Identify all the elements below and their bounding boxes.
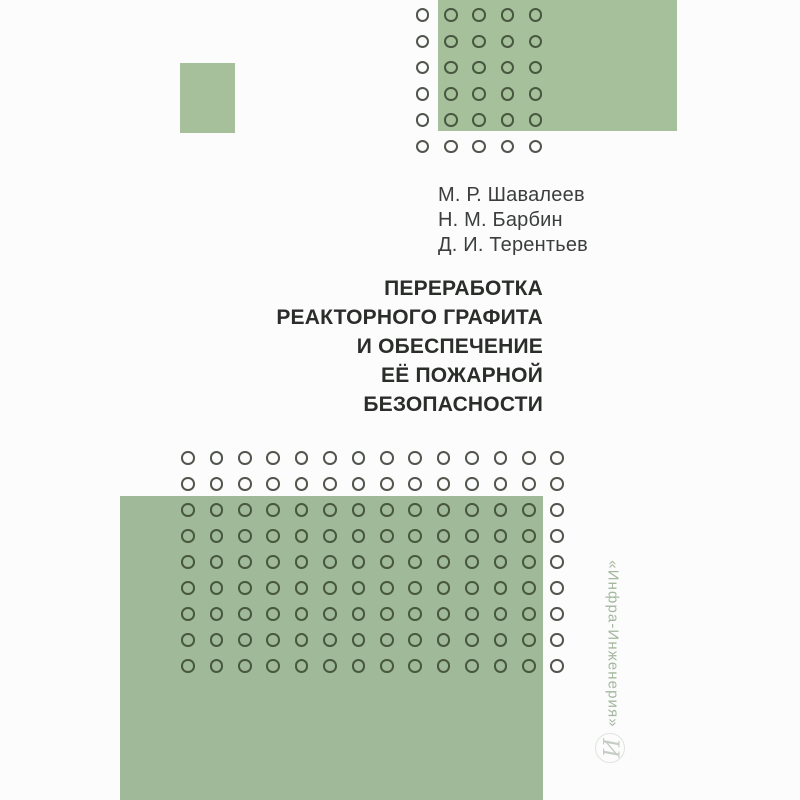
decor-ring bbox=[295, 477, 309, 491]
decor-ring bbox=[437, 607, 451, 621]
title-line: ПЕРЕРАБОТКА bbox=[276, 274, 543, 303]
decor-ring bbox=[266, 633, 280, 647]
decor-ring bbox=[408, 659, 422, 673]
decor-ring bbox=[494, 633, 508, 647]
decor-ring bbox=[408, 477, 422, 491]
decor-ring bbox=[416, 8, 430, 22]
title-line: РЕАКТОРНОГО ГРАФИТА bbox=[276, 303, 543, 332]
decor-ring bbox=[380, 451, 394, 465]
title-line: БЕЗОПАСНОСТИ bbox=[276, 390, 543, 419]
decor-ring bbox=[550, 633, 564, 647]
decor-ring bbox=[210, 633, 224, 647]
decor-ring bbox=[352, 477, 366, 491]
decor-ring bbox=[266, 477, 280, 491]
decor-ring bbox=[550, 477, 564, 491]
decor-ring bbox=[380, 633, 394, 647]
decor-ring bbox=[238, 555, 252, 569]
decor-ring bbox=[295, 607, 309, 621]
decor-ring bbox=[529, 140, 543, 154]
decor-ring bbox=[465, 555, 479, 569]
decor-ring bbox=[380, 659, 394, 673]
decor-ring bbox=[181, 555, 195, 569]
decor-ring bbox=[352, 529, 366, 543]
decor-ring bbox=[437, 633, 451, 647]
decor-ring bbox=[380, 503, 394, 517]
decor-ring bbox=[352, 581, 366, 595]
decor-ring bbox=[210, 555, 224, 569]
decor-ring bbox=[437, 503, 451, 517]
book-title: ПЕРЕРАБОТКА РЕАКТОРНОГО ГРАФИТА И ОБЕСПЕ… bbox=[276, 274, 543, 419]
decor-ring bbox=[352, 555, 366, 569]
decor-ring bbox=[416, 87, 430, 101]
decor-ring bbox=[522, 477, 536, 491]
decor-ring bbox=[323, 529, 337, 543]
decor-ring bbox=[550, 659, 564, 673]
decor-ring bbox=[181, 529, 195, 543]
decor-ring bbox=[238, 477, 252, 491]
decor-ring bbox=[408, 581, 422, 595]
decor-ring bbox=[181, 451, 195, 465]
decor-ring bbox=[181, 633, 195, 647]
decor-ring bbox=[323, 581, 337, 595]
decor-ring bbox=[465, 477, 479, 491]
author-line: Д. И. Терентьев bbox=[438, 233, 588, 258]
decor-ring bbox=[416, 35, 430, 49]
decor-ring bbox=[323, 477, 337, 491]
decor-ring bbox=[444, 87, 458, 101]
decor-ring bbox=[472, 87, 486, 101]
decor-ring bbox=[210, 607, 224, 621]
title-line: ЕЁ ПОЖАРНОЙ bbox=[276, 361, 543, 390]
decor-ring bbox=[465, 633, 479, 647]
author-line: Н. М. Барбин bbox=[438, 208, 588, 233]
decor-ring bbox=[494, 451, 508, 465]
publisher-monogram-icon: И bbox=[595, 733, 625, 763]
decor-ring bbox=[380, 607, 394, 621]
decor-ring bbox=[323, 633, 337, 647]
decor-ring bbox=[323, 503, 337, 517]
decor-ring bbox=[550, 581, 564, 595]
decor-ring bbox=[266, 659, 280, 673]
decor-ring bbox=[522, 555, 536, 569]
decor-ring bbox=[266, 529, 280, 543]
decor-ring bbox=[323, 451, 337, 465]
decor-ring bbox=[210, 529, 224, 543]
decor-ring bbox=[501, 113, 515, 127]
decor-ring bbox=[210, 659, 224, 673]
decor-ring bbox=[465, 529, 479, 543]
decor-ring bbox=[352, 633, 366, 647]
decor-ring bbox=[352, 659, 366, 673]
decor-ring bbox=[238, 503, 252, 517]
decor-ring bbox=[472, 35, 486, 49]
author-list: М. Р. Шавалеев Н. М. Барбин Д. И. Терент… bbox=[438, 183, 588, 258]
decor-ring bbox=[181, 659, 195, 673]
decor-ring bbox=[472, 8, 486, 22]
decor-ring bbox=[437, 529, 451, 543]
decor-ring bbox=[408, 607, 422, 621]
decor-ring bbox=[437, 581, 451, 595]
decor-ring bbox=[266, 451, 280, 465]
decor-ring bbox=[444, 61, 458, 75]
decor-ring bbox=[550, 607, 564, 621]
decor-ring bbox=[501, 35, 515, 49]
decor-ring bbox=[266, 555, 280, 569]
decor-ring bbox=[501, 87, 515, 101]
decor-ring bbox=[210, 451, 224, 465]
decor-ring bbox=[550, 555, 564, 569]
decor-ring bbox=[408, 555, 422, 569]
decor-ring bbox=[494, 659, 508, 673]
decor-ring bbox=[444, 35, 458, 49]
decor-ring bbox=[380, 555, 394, 569]
decor-ring bbox=[295, 633, 309, 647]
decor-ring bbox=[181, 477, 195, 491]
decor-ring bbox=[494, 529, 508, 543]
decor-ring bbox=[472, 113, 486, 127]
decor-ring bbox=[408, 633, 422, 647]
decor-ring bbox=[444, 140, 458, 154]
decor-ring bbox=[352, 451, 366, 465]
decor-ring bbox=[238, 529, 252, 543]
decor-ring bbox=[494, 477, 508, 491]
decor-ring bbox=[522, 607, 536, 621]
decor-ring bbox=[238, 633, 252, 647]
decor-ring bbox=[210, 477, 224, 491]
decor-ring bbox=[408, 503, 422, 517]
decor-ring bbox=[323, 659, 337, 673]
decor-ring bbox=[181, 607, 195, 621]
decor-ring bbox=[380, 529, 394, 543]
decor-ring bbox=[266, 581, 280, 595]
decor-ring bbox=[380, 477, 394, 491]
decor-ring bbox=[181, 503, 195, 517]
decor-ring bbox=[295, 659, 309, 673]
decor-ring bbox=[437, 451, 451, 465]
decor-ring bbox=[444, 113, 458, 127]
decor-ring bbox=[494, 581, 508, 595]
decor-ring bbox=[416, 140, 430, 154]
decor-ring bbox=[522, 503, 536, 517]
decor-ring bbox=[529, 8, 543, 22]
decor-ring bbox=[323, 607, 337, 621]
decor-ring bbox=[522, 633, 536, 647]
decor-ring bbox=[323, 555, 337, 569]
decor-ring bbox=[266, 607, 280, 621]
decor-ring bbox=[416, 113, 430, 127]
book-cover: М. Р. Шавалеев Н. М. Барбин Д. И. Терент… bbox=[0, 0, 800, 800]
decor-ring bbox=[501, 8, 515, 22]
decor-ring bbox=[550, 529, 564, 543]
decor-ring bbox=[295, 503, 309, 517]
decor-ring bbox=[295, 529, 309, 543]
decor-ring bbox=[352, 503, 366, 517]
decor-ring bbox=[550, 503, 564, 517]
decor-ring bbox=[522, 581, 536, 595]
monogram-glyph: И bbox=[598, 738, 623, 757]
decor-ring bbox=[437, 659, 451, 673]
decor-ring bbox=[465, 607, 479, 621]
decor-ring bbox=[472, 140, 486, 154]
decor-ring bbox=[352, 607, 366, 621]
decor-ring bbox=[494, 503, 508, 517]
decor-ring bbox=[416, 61, 430, 75]
decor-ring bbox=[437, 555, 451, 569]
decor-ring bbox=[181, 581, 195, 595]
decor-ring bbox=[550, 451, 564, 465]
decor-ring bbox=[522, 529, 536, 543]
decor-ring bbox=[295, 555, 309, 569]
decor-ring bbox=[380, 581, 394, 595]
title-line: И ОБЕСПЕЧЕНИЕ bbox=[276, 332, 543, 361]
decor-ring bbox=[266, 503, 280, 517]
decor-ring bbox=[465, 503, 479, 517]
decor-ring bbox=[408, 451, 422, 465]
decor-ring bbox=[295, 451, 309, 465]
decor-ring bbox=[494, 607, 508, 621]
decor-ring bbox=[238, 581, 252, 595]
publisher-vertical-text: «Инфра-Инженерия» bbox=[605, 560, 622, 727]
decor-ring bbox=[501, 140, 515, 154]
author-line: М. Р. Шавалеев bbox=[438, 183, 588, 208]
decor-ring bbox=[494, 555, 508, 569]
decor-ring bbox=[408, 529, 422, 543]
decor-ring bbox=[437, 477, 451, 491]
decor-ring bbox=[529, 87, 543, 101]
decor-ring bbox=[210, 581, 224, 595]
decor-ring bbox=[522, 451, 536, 465]
decor-ring bbox=[210, 503, 224, 517]
decor-ring bbox=[465, 581, 479, 595]
decor-ring bbox=[522, 659, 536, 673]
decor-ring bbox=[295, 581, 309, 595]
decor-square-top-left bbox=[180, 63, 235, 133]
decor-ring bbox=[238, 607, 252, 621]
decor-ring bbox=[465, 659, 479, 673]
decor-ring bbox=[465, 451, 479, 465]
decor-ring bbox=[238, 451, 252, 465]
decor-ring bbox=[444, 8, 458, 22]
decor-ring bbox=[238, 659, 252, 673]
